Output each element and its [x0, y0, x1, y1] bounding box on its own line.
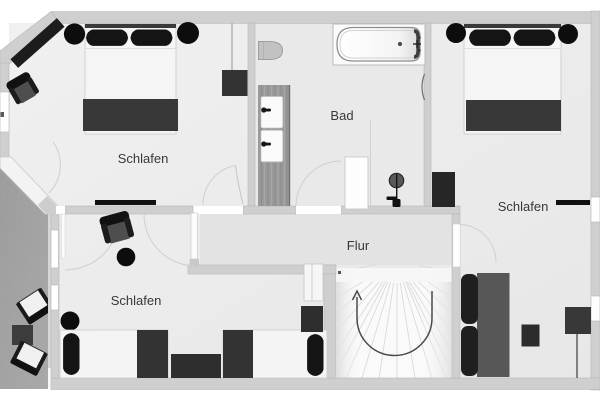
svg-text:Flur: Flur	[347, 238, 370, 253]
svg-text:Bad: Bad	[330, 108, 353, 123]
svg-text:Schlafen: Schlafen	[111, 293, 162, 308]
svg-text:Schlafen: Schlafen	[498, 199, 549, 214]
svg-text:Schlafen: Schlafen	[118, 151, 169, 166]
